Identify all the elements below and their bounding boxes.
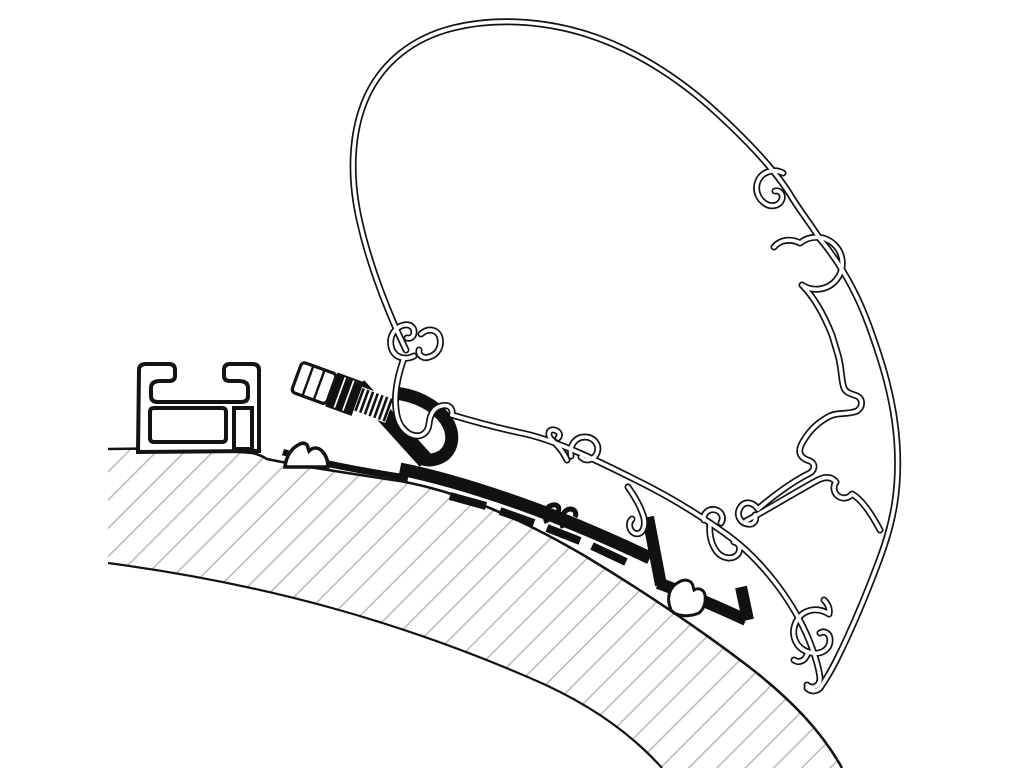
adapter-cross-section-diagram <box>0 0 1024 768</box>
roof-mounting-rail <box>138 364 259 452</box>
technical-drawing-page <box>0 0 1024 768</box>
bracket-body <box>138 364 259 452</box>
fixing-bolt <box>290 360 395 428</box>
sealant-blob <box>669 580 706 616</box>
adapter-end-stub <box>741 587 748 620</box>
adapter-riser <box>648 517 661 585</box>
rubber-foot <box>285 443 328 467</box>
